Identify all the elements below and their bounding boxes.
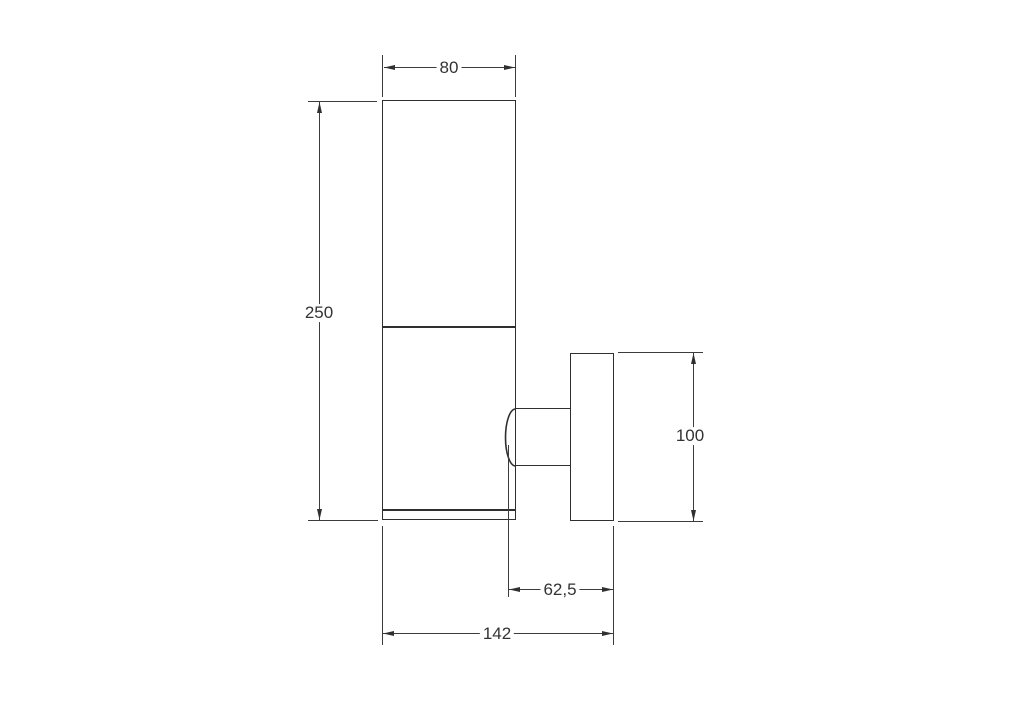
extension-line <box>515 55 516 97</box>
extension-line <box>613 526 614 645</box>
dim-arrow-right <box>602 587 613 592</box>
extension-line <box>382 526 383 645</box>
dim-label-plate-height: 100 <box>673 427 707 445</box>
technical-drawing-canvas: 80 250 100 62,5 142 <box>0 0 1024 723</box>
dim-arrow-right <box>504 65 515 70</box>
wall-plate-outline <box>570 353 614 521</box>
dim-arrow-up <box>691 353 696 364</box>
dim-label-bracket-depth: 62,5 <box>540 581 579 599</box>
dim-arrow-left <box>384 65 395 70</box>
lamp-body-outline <box>382 100 516 520</box>
lamp-base-cap-line <box>383 509 515 511</box>
dim-label-width: 80 <box>437 59 462 77</box>
mount-arm-outline <box>515 408 571 466</box>
extension-line <box>308 520 378 521</box>
dim-arrow-down <box>691 510 696 521</box>
dim-arrow-left <box>509 587 520 592</box>
lamp-section-line <box>383 326 515 328</box>
dim-arrow-right <box>602 631 613 636</box>
dim-arrow-left <box>383 631 394 636</box>
extension-line <box>618 352 703 353</box>
dim-arrow-up <box>317 102 322 113</box>
extension-line <box>382 55 383 97</box>
dim-label-overall-depth: 142 <box>480 625 514 643</box>
mount-arm-arc <box>498 403 520 471</box>
extension-line <box>508 445 509 597</box>
dim-arrow-down <box>317 509 322 520</box>
extension-line <box>618 521 703 522</box>
dim-label-height: 250 <box>302 304 336 322</box>
